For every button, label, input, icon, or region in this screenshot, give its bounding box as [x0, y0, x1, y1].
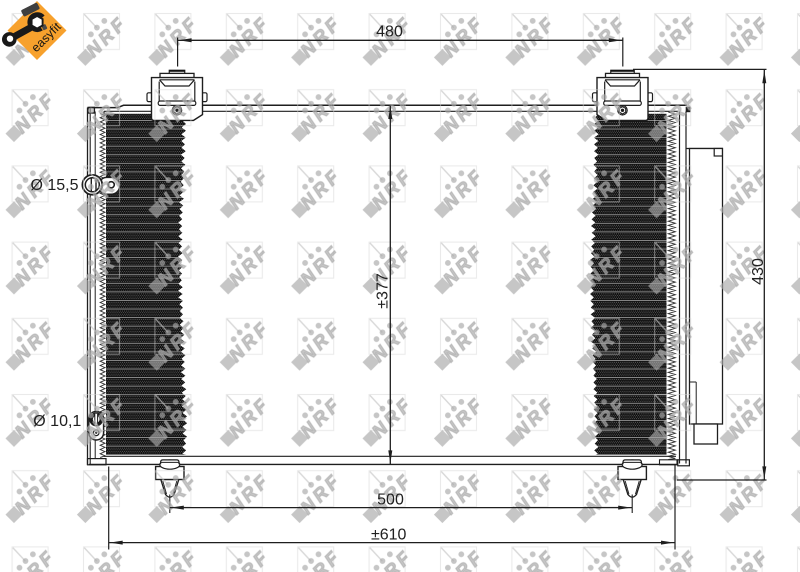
svg-text:430: 430 [750, 258, 767, 285]
svg-text:500: 500 [377, 491, 404, 508]
svg-text:Ø 10,1: Ø 10,1 [33, 413, 81, 430]
svg-text:±377: ±377 [374, 273, 391, 309]
svg-text:480: 480 [376, 24, 403, 41]
svg-text:Ø 15,5: Ø 15,5 [30, 177, 78, 194]
svg-text:±610: ±610 [371, 526, 407, 543]
